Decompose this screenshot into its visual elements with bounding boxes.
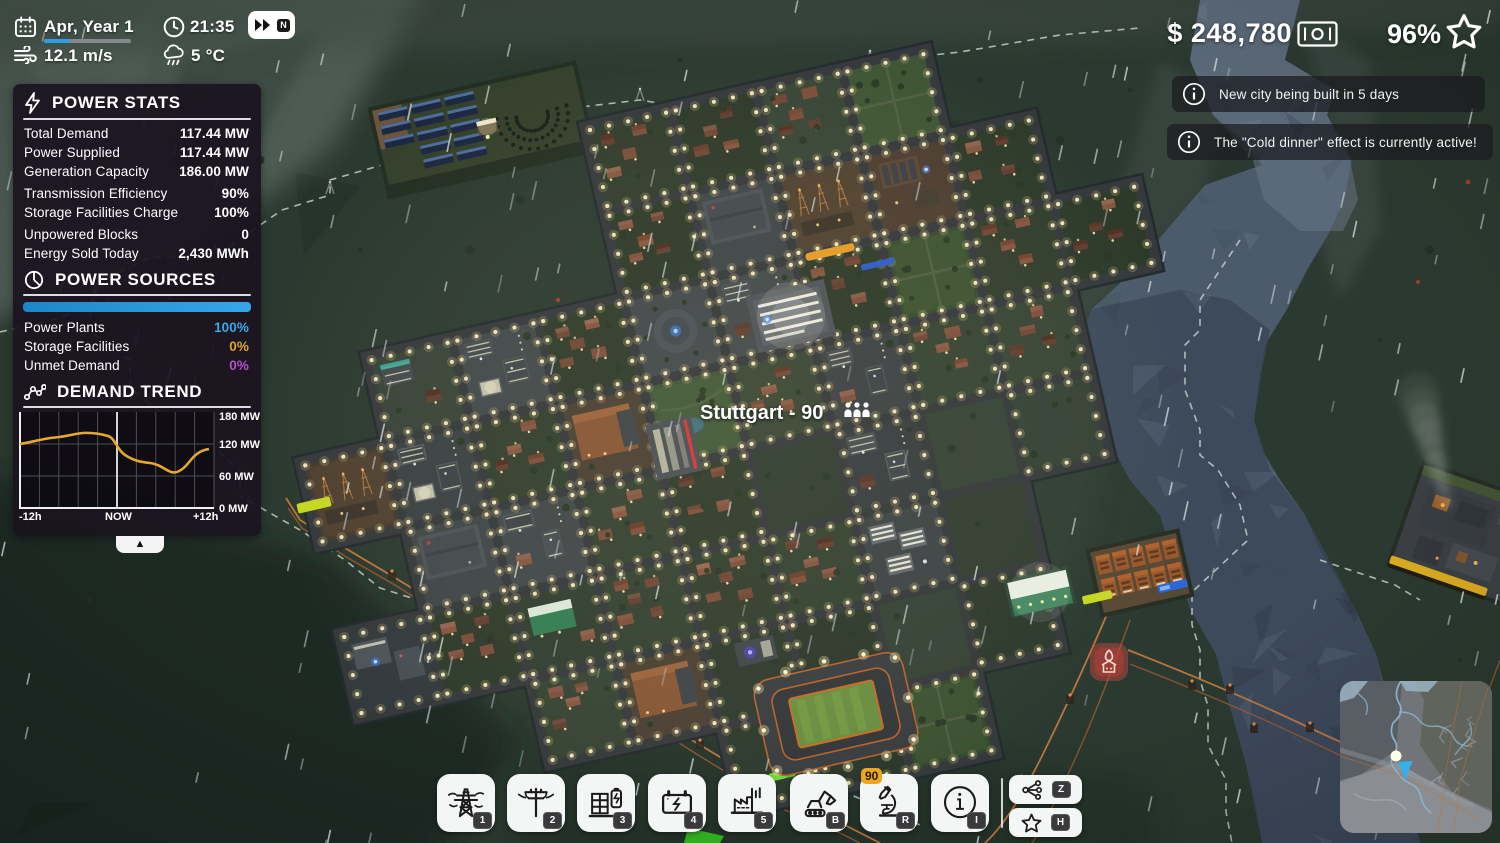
svg-text:0 MW: 0 MW: [219, 503, 248, 515]
svg-text:60 MW: 60 MW: [219, 471, 254, 483]
svg-text:-12h: -12h: [19, 511, 42, 523]
svg-text:NOW: NOW: [105, 511, 133, 523]
svg-text:180 MW: 180 MW: [219, 411, 261, 423]
svg-text:+12h: +12h: [193, 511, 219, 523]
svg-text:Stuttgart - 90: Stuttgart - 90: [700, 402, 823, 424]
svg-text:120 MW: 120 MW: [219, 439, 261, 451]
